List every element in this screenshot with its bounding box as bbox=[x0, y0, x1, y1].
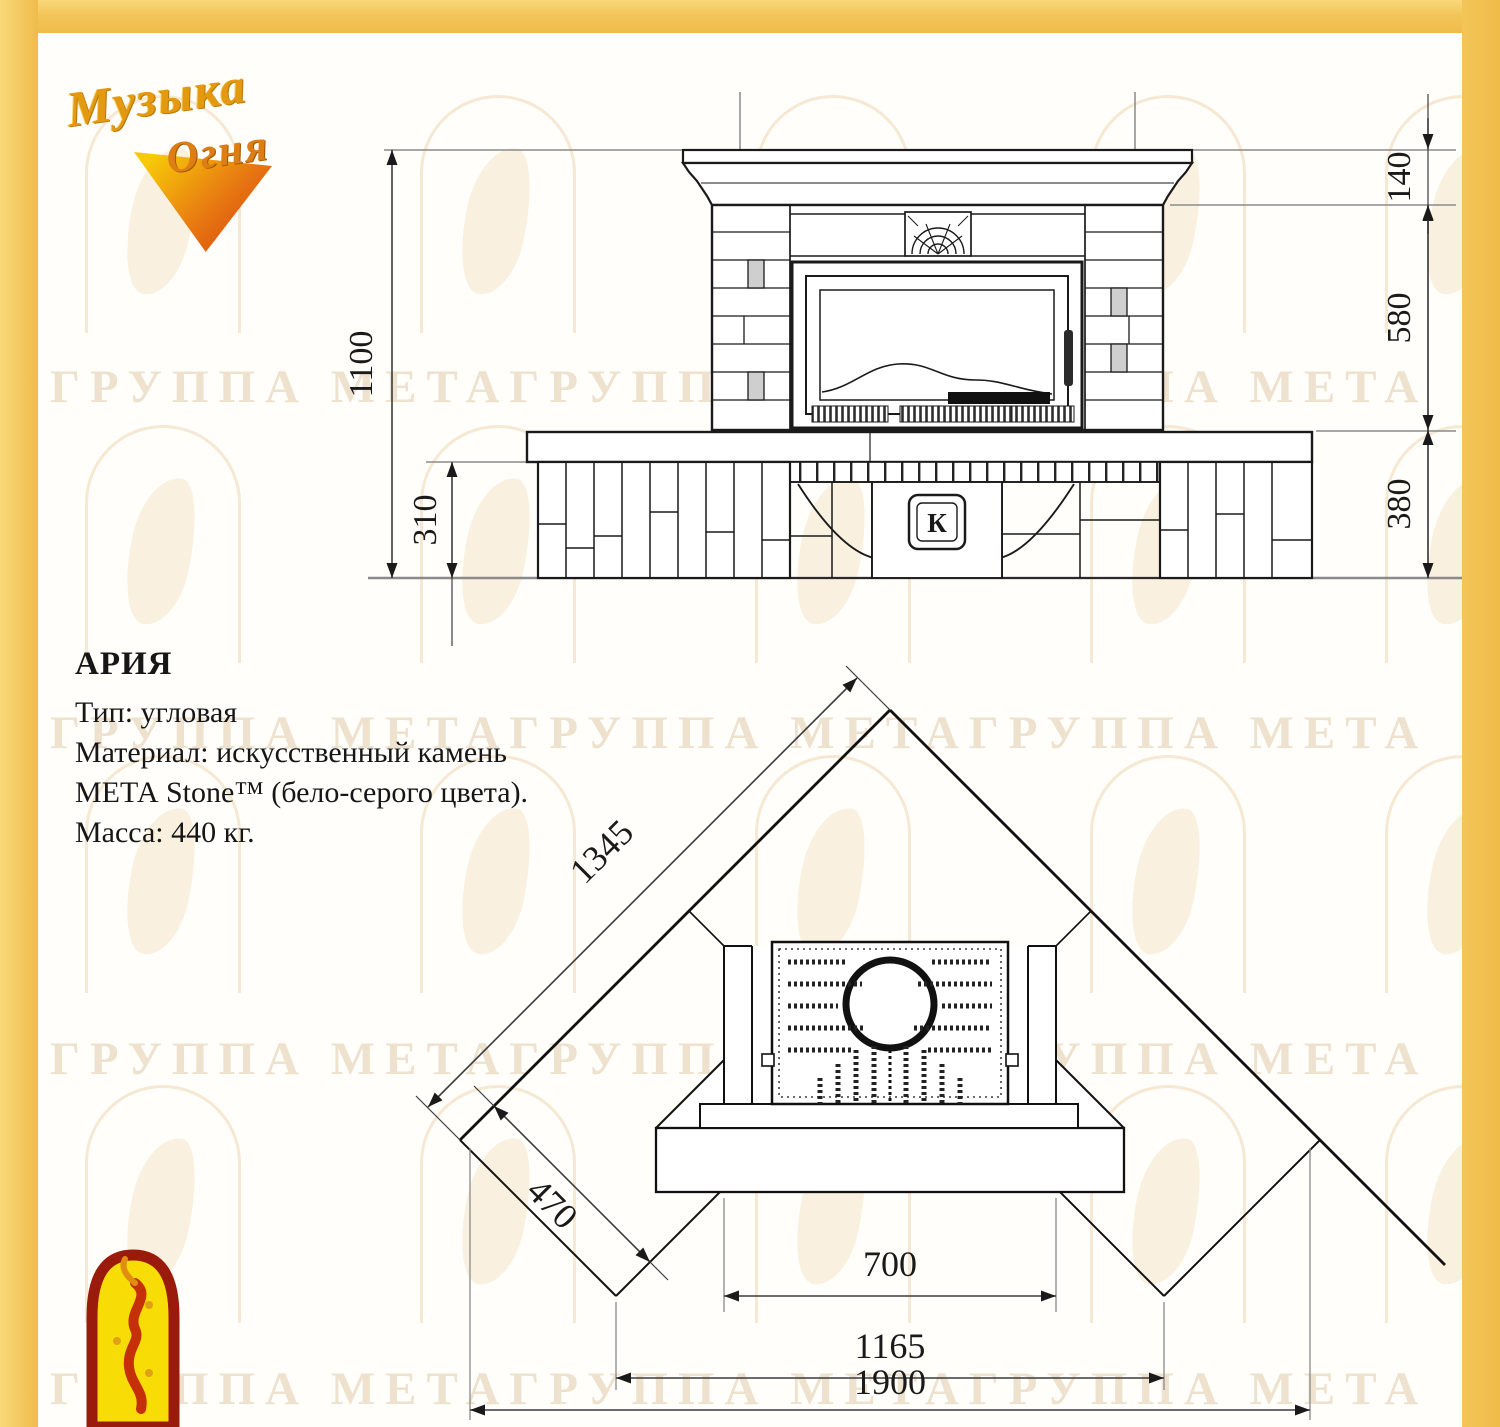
page-border-right bbox=[1462, 0, 1500, 1427]
dim-label-700: 700 bbox=[863, 1244, 917, 1284]
flue-collar bbox=[846, 960, 934, 1048]
dim-label-140: 140 bbox=[1381, 152, 1418, 203]
dim-label-580: 580 bbox=[1381, 293, 1418, 344]
dim-label-310: 310 bbox=[407, 495, 444, 546]
product-type-line: Тип: угловая bbox=[75, 693, 528, 733]
dentil-row bbox=[790, 462, 1160, 482]
dim-label-1345: 1345 bbox=[562, 812, 641, 891]
grate-strip bbox=[948, 392, 1050, 404]
dim-label-1165: 1165 bbox=[855, 1326, 926, 1366]
dim-label-1900: 1900 bbox=[854, 1362, 926, 1402]
product-mass-line: Масса: 440 кг. bbox=[75, 813, 528, 853]
page-border-left bbox=[0, 0, 38, 1427]
product-info: АРИЯ Тип: угловая Материал: искусственны… bbox=[75, 646, 528, 853]
meta-arch-emblem bbox=[83, 1245, 183, 1427]
firebox-door bbox=[792, 262, 1082, 428]
dim-label-380: 380 bbox=[1381, 479, 1418, 530]
music-of-fire-logo: Музыка Огня bbox=[48, 42, 348, 242]
product-material-line: Материал: искусственный камень bbox=[75, 733, 528, 773]
front-view-drawing: К 1100 310 140 580 380 bbox=[343, 92, 1462, 646]
insert-base-slab bbox=[700, 1104, 1078, 1128]
plan-firebox-insert bbox=[762, 942, 1018, 1104]
vent-slots bbox=[900, 406, 1024, 422]
plan-view-drawing: 1345 470 700 1165 1900 bbox=[416, 666, 1445, 1420]
dim-label-1100: 1100 bbox=[343, 331, 380, 398]
vent-slots bbox=[812, 406, 888, 422]
mantel-shelf bbox=[683, 150, 1192, 205]
dim-label-470: 470 bbox=[519, 1170, 585, 1236]
plan-hearth-slab bbox=[656, 1128, 1124, 1192]
product-material-line2: МЕТА Stone™ (бело-серого цвета). bbox=[75, 773, 528, 813]
maker-badge-letter: К bbox=[927, 508, 947, 538]
door-handle bbox=[1064, 330, 1073, 386]
right-wing-cap bbox=[1164, 1140, 1320, 1296]
left-wing-cap bbox=[460, 1140, 616, 1296]
vent-slots bbox=[1012, 406, 1074, 422]
product-name: АРИЯ bbox=[75, 646, 528, 683]
page-border-top bbox=[0, 0, 1500, 33]
